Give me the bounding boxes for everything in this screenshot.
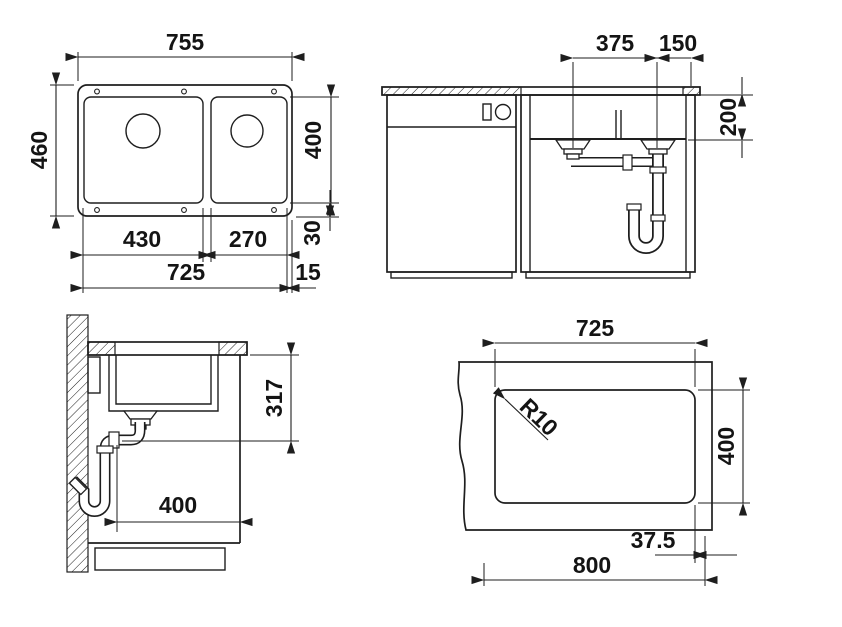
dim-inner-width: 725	[83, 259, 287, 288]
basin-inner-wall	[116, 355, 211, 404]
sink-base-cabinet	[521, 95, 695, 278]
dim-drain-to-edge: 150	[657, 30, 697, 58]
top-view: 755 460 400 30 430	[26, 29, 339, 293]
dim-overall-depth-label: 460	[26, 131, 52, 169]
dim-min-width: 800	[484, 552, 705, 586]
counter-hatch-right	[219, 342, 247, 355]
bowl-right	[211, 97, 287, 203]
dim-drain-to-edge-label: 150	[659, 30, 697, 56]
dim-left-bowl-width: 430	[83, 226, 203, 255]
pipe-coupling	[651, 215, 665, 221]
pipe-coupling	[623, 155, 632, 170]
control-button	[483, 104, 491, 120]
sink-outer-rim	[78, 85, 292, 216]
dim-cutout-depth-label: 400	[713, 427, 739, 465]
strainer-right	[641, 140, 675, 149]
dim-overall-width-label: 755	[166, 29, 205, 55]
dim-left-bowl-width-label: 430	[123, 226, 161, 252]
technical-drawing: 755 460 400 30 430	[0, 0, 842, 627]
drain-left	[126, 114, 160, 148]
strainer	[124, 411, 157, 419]
countertop-hatch-right	[683, 87, 700, 95]
wall-batten	[88, 357, 100, 393]
dim-overall-width: 755	[78, 29, 292, 81]
dim-overall-depth: 460	[26, 85, 74, 216]
bowl-left	[84, 97, 203, 203]
countertop-hatch-left	[382, 87, 521, 95]
drain-right	[231, 115, 263, 147]
pipe-coupling	[650, 167, 666, 173]
dim-cutout-width-label: 725	[576, 315, 615, 341]
dim-front-clearance: 400	[117, 445, 240, 532]
drain-plumbing	[556, 140, 675, 248]
dim-bottom-rim: 30	[296, 190, 339, 246]
counter-hatch-left	[88, 342, 115, 355]
dim-bowl-depth-label: 400	[300, 121, 326, 159]
pipe-coupling	[627, 204, 641, 210]
control-knob	[496, 105, 511, 120]
pipe-coupling	[97, 446, 113, 453]
side-view: 317 400	[67, 315, 299, 572]
basin-outer-wall	[109, 355, 218, 411]
drawing-canvas: 755 460 400 30 430	[0, 0, 842, 627]
dim-inner-width-label: 725	[167, 259, 206, 285]
dim-drain-spacing-label: 375	[596, 30, 635, 56]
dim-front-clearance-label: 400	[159, 492, 197, 518]
dim-edge-margin-label: 37.5	[631, 527, 676, 553]
dim-right-rim: 15	[292, 259, 321, 288]
dishwasher-base	[391, 272, 512, 278]
dim-min-width-label: 800	[573, 552, 611, 578]
dim-right-bowl-width-label: 270	[229, 226, 267, 252]
dim-bowl-height-label: 200	[715, 98, 741, 136]
dishwasher-cabinet	[387, 95, 516, 278]
sink-cabinet-base	[526, 272, 690, 278]
wall-section	[67, 315, 88, 572]
dim-right-rim-label: 15	[295, 259, 321, 285]
dim-bowl-depth: 400	[290, 97, 339, 203]
screw-holes	[95, 89, 277, 212]
cutout-template-view: R10 725 400 37.5 800	[458, 315, 750, 586]
dim-outlet-height-label: 317	[261, 379, 287, 417]
plinth	[95, 548, 225, 570]
dim-right-bowl-width: 270	[211, 226, 287, 255]
front-view: 375 150 200	[382, 30, 753, 278]
dim-bottom-rim-label: 30	[299, 220, 325, 246]
